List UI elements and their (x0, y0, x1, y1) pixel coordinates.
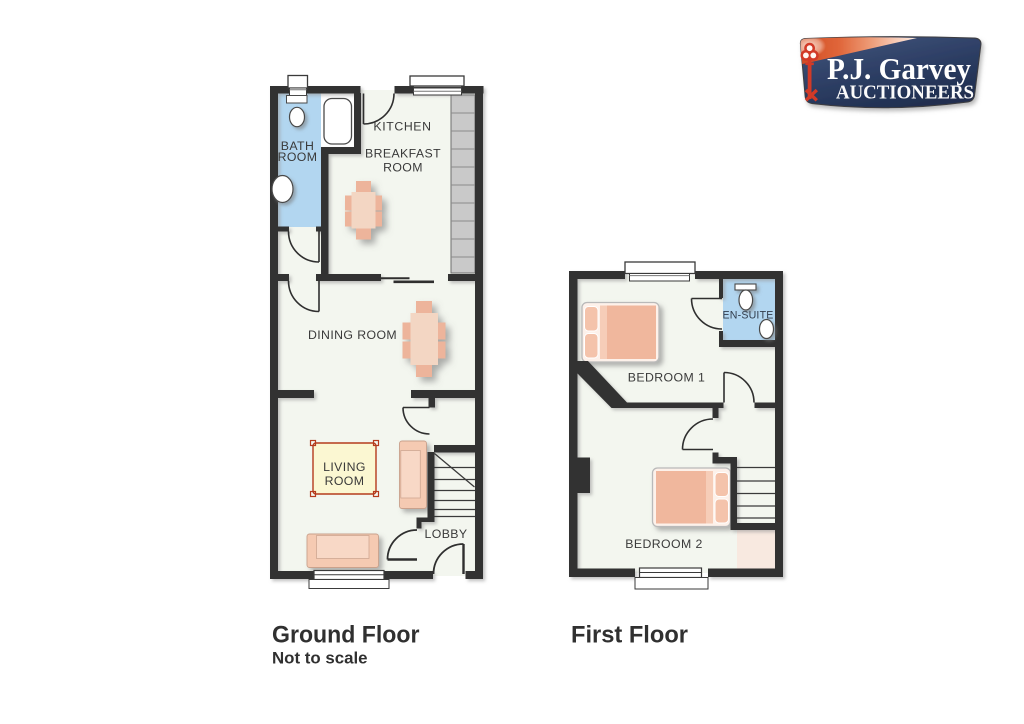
svg-text:BREAKFAST: BREAKFAST (365, 147, 441, 161)
svg-text:LIVING: LIVING (323, 460, 366, 474)
svg-text:ROOM: ROOM (325, 474, 365, 488)
svg-text:Ground Floor: Ground Floor (272, 622, 420, 649)
svg-text:BEDROOM 1: BEDROOM 1 (628, 371, 705, 385)
svg-text:First Floor: First Floor (571, 622, 688, 649)
svg-text:AUCTIONEERS: AUCTIONEERS (836, 82, 974, 104)
svg-text:ROOM: ROOM (383, 161, 423, 175)
svg-text:EN-SUITE: EN-SUITE (722, 310, 773, 322)
svg-text:ROOM: ROOM (278, 150, 318, 164)
svg-text:Not to scale: Not to scale (272, 650, 368, 668)
svg-text:BEDROOM 2: BEDROOM 2 (625, 537, 702, 551)
svg-text:DINING ROOM: DINING ROOM (308, 328, 397, 342)
svg-text:KITCHEN: KITCHEN (373, 120, 431, 134)
svg-text:LOBBY: LOBBY (424, 527, 467, 541)
